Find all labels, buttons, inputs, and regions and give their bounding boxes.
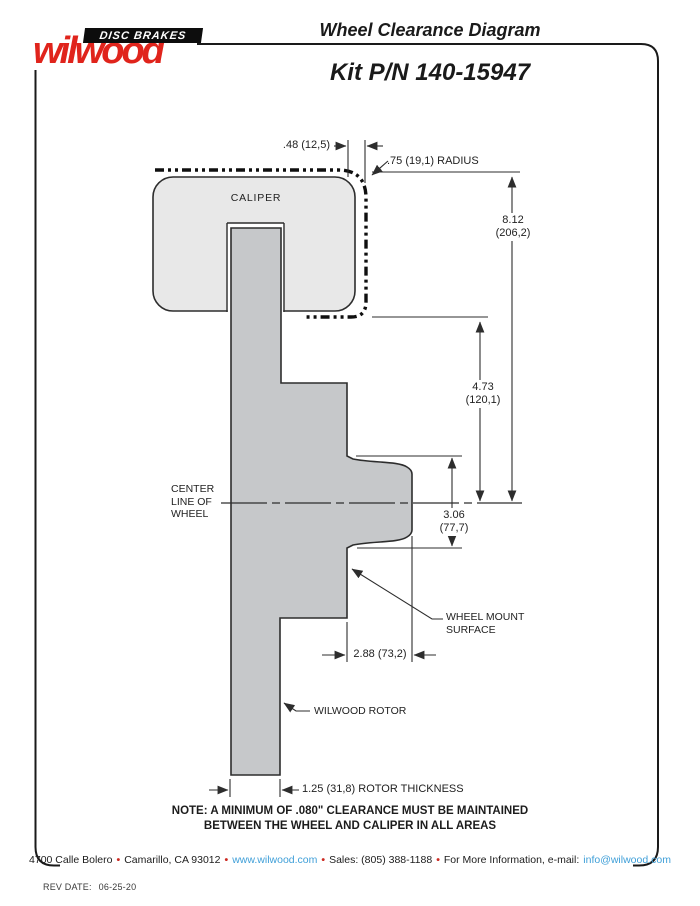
footer-contact-bar: 4700 Calle Bolero • Camarillo, CA 93012 … [0, 854, 700, 866]
website-link[interactable]: www.wilwood.com [232, 854, 317, 866]
footer-more-info: For More Information, e-mail: [444, 854, 579, 866]
footer-city: Camarillo, CA 93012 [124, 854, 220, 866]
dim-caliper-to-centerline: 4.73 (120,1) [456, 380, 510, 408]
page-title: Wheel Clearance Diagram [250, 20, 610, 41]
caliper-label: CALIPER [216, 192, 296, 204]
dim-caliper-overhang: .48 (12,5) [248, 139, 330, 151]
kit-part-number: Kit P/N 140-15947 [250, 59, 610, 87]
rotor-label: WILWOOD ROTOR [314, 705, 406, 718]
dim-hub-flange-height: 3.06 (77,7) [429, 508, 479, 536]
footer-bullet: • [117, 854, 121, 866]
footer-bullet: • [321, 854, 325, 866]
diagram-canvas [0, 0, 700, 906]
dim-mount-offset: 2.88 (73,2) [349, 648, 411, 660]
rev-date: REV DATE:06-25-20 [43, 882, 143, 892]
clearance-note: NOTE: A MINIMUM OF .080" CLEARANCE MUST … [100, 804, 600, 834]
footer-sales-phone: Sales: (805) 388-1188 [329, 854, 432, 866]
footer-address: 4700 Calle Bolero [29, 854, 112, 866]
dim-overall-height: 8.12 (206,2) [486, 213, 540, 241]
dim-rotor-thickness: 1.25 (31,8) ROTOR THICKNESS [302, 783, 464, 795]
footer-bullet: • [436, 854, 440, 866]
footer-bullet: • [225, 854, 229, 866]
wheel-mount-label: WHEEL MOUNT SURFACE [446, 611, 524, 636]
centerline-label: CENTER LINE OF WHEEL [171, 483, 214, 521]
disc-brakes-badge: DISC BRAKES [83, 28, 203, 43]
rev-date-value: 06-25-20 [99, 882, 137, 892]
rev-date-label: REV DATE: [43, 882, 92, 892]
wheel-clearance-diagram-page: wilwood DISC BRAKES Wheel Clearance Diag… [0, 0, 700, 906]
email-link[interactable]: info@wilwood.com [583, 854, 671, 866]
dim-corner-radius: .75 (19,1) RADIUS [387, 155, 479, 167]
